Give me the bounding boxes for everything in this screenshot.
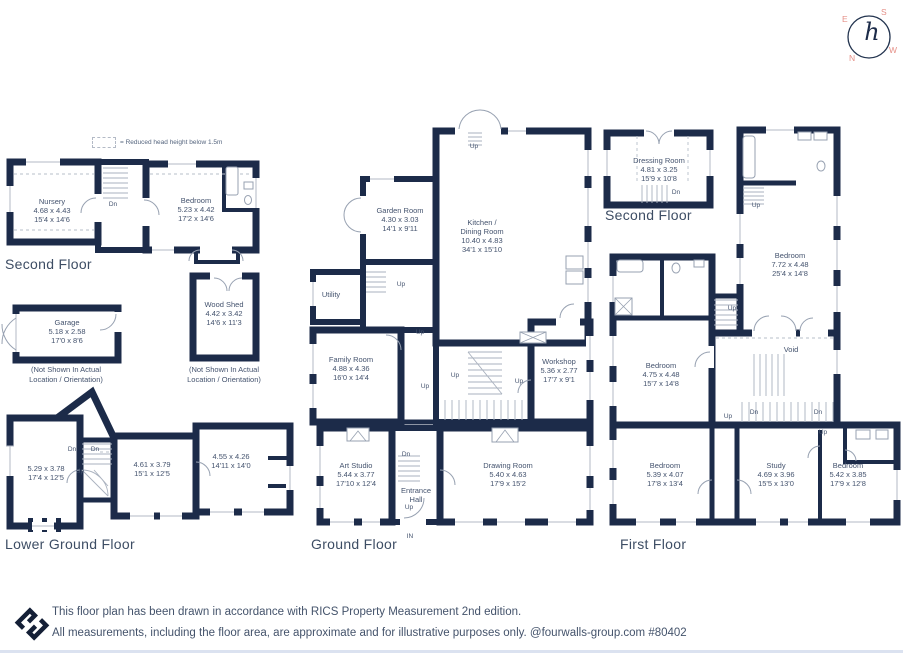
fourwalls-logo-icon [12,602,52,646]
floor-plan-page: Nursery4.68 x 4.4315'4 x 14'6Bedroom5.23… [0,0,903,653]
footer-line-1: This floor plan has been drawn in accord… [52,606,521,618]
windows [6,126,901,530]
footer-line-2: All measurements, including the floor ar… [52,627,687,639]
compass-north: N [849,53,855,63]
floor-plan-drawing [0,0,903,653]
fixtures [226,132,888,442]
legend: = Reduced head height below 1.5m [92,137,222,148]
compass-monogram: h [856,18,888,46]
reduced-head-height-swatch [92,137,116,148]
legend-text: = Reduced head height below 1.5m [120,139,222,146]
compass-south: S [881,7,887,17]
compass-west: W [889,45,897,55]
door-arcs [2,110,856,518]
compass: E S N W h [836,2,903,74]
walls [10,130,897,526]
footer: This floor plan has been drawn in accord… [0,598,903,650]
compass-east: E [842,14,848,24]
